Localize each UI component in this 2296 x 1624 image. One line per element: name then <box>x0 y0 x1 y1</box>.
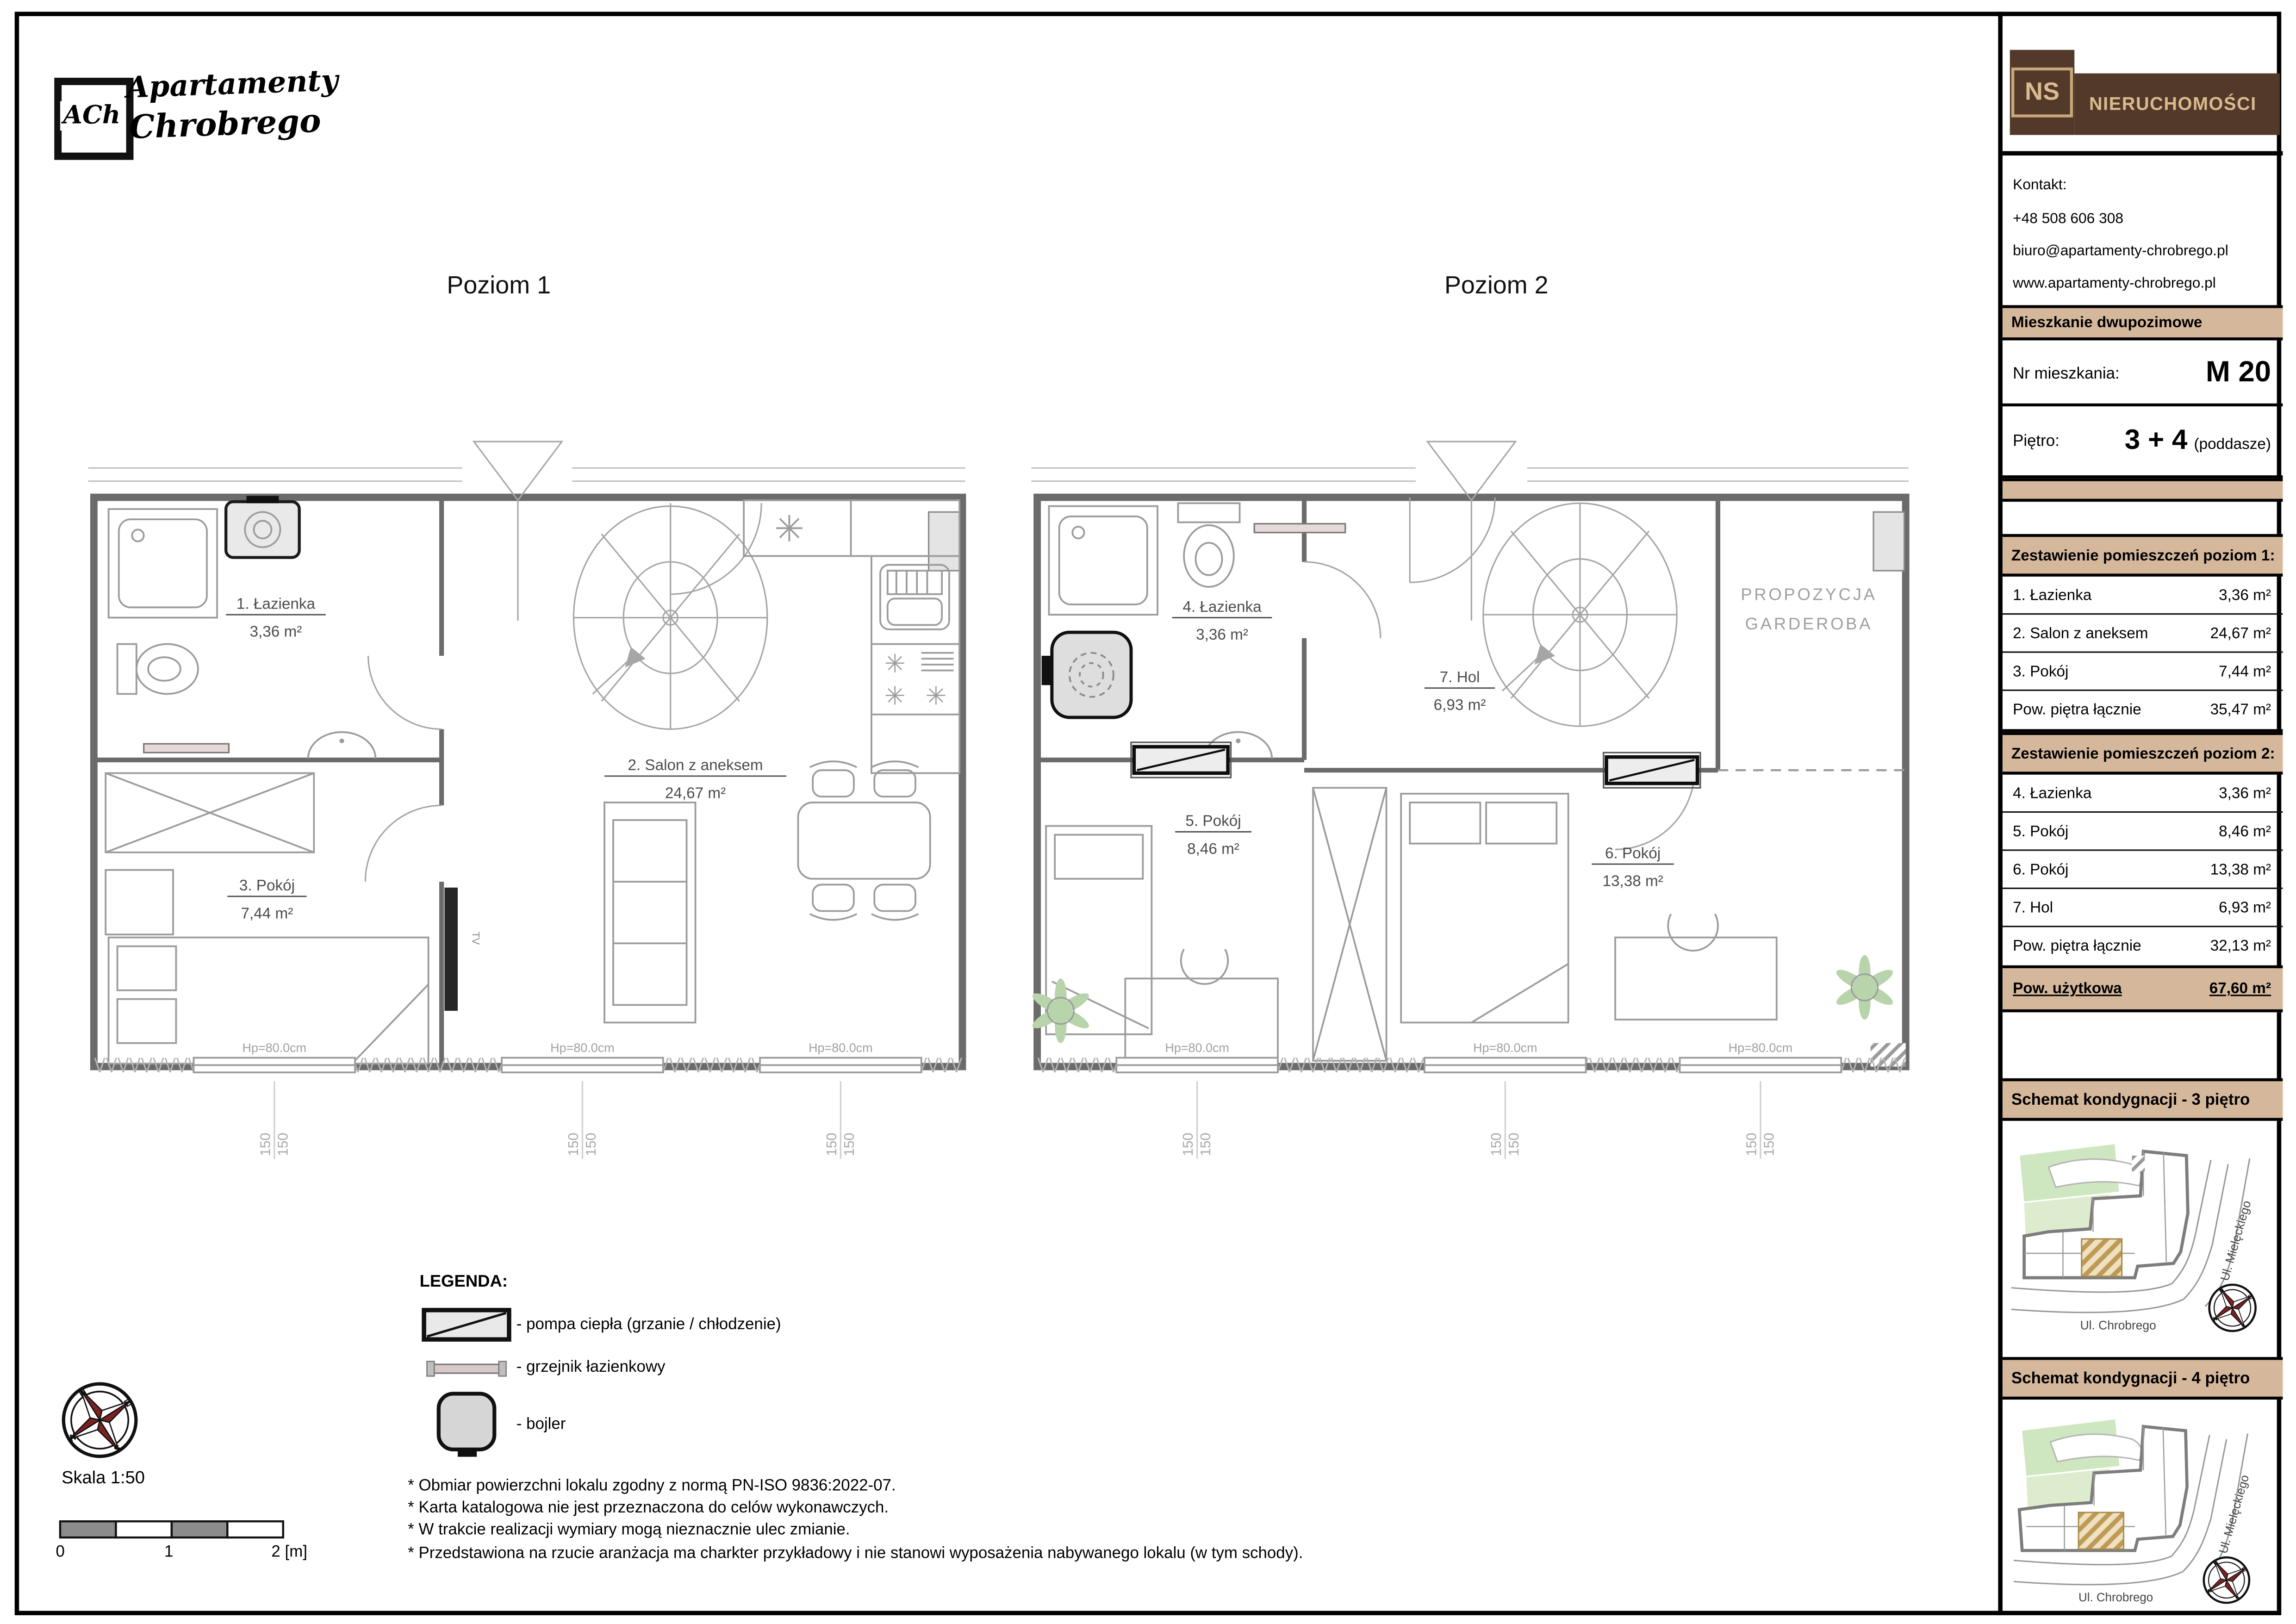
room5-furniture <box>1031 826 1278 1061</box>
floor-suffix: (poddasze) <box>2194 435 2271 453</box>
street-label-mieleckiego: Ul. Mielęckiego <box>2217 1199 2253 1282</box>
street-label-chrobrego: Ul. Chrobrego <box>2080 1319 2156 1332</box>
table-row: 3. Pokój7,44 m² <box>2003 653 2283 691</box>
boiler-icon <box>1052 632 1131 717</box>
bathroom1-fixtures <box>109 496 376 758</box>
footnote: * Karta katalogowa nie jest przeznaczona… <box>408 1498 1303 1520</box>
living-furniture <box>604 761 930 1022</box>
table-row: 1. Łazienka3,36 m² <box>2003 577 2283 615</box>
toilet-icon <box>118 644 137 694</box>
kitchen-sink-icon <box>880 565 949 629</box>
bathroom-heater-icon <box>1254 524 1345 533</box>
room2-name: 2. Salon z aneksem <box>628 757 763 774</box>
apartment-type-banner: Mieszkanie dwupozimowe <box>2003 305 2283 340</box>
spiral-stairs-icon <box>1483 503 1677 726</box>
window: Hp=80.0cm <box>1680 1041 1842 1072</box>
washing-machine-icon <box>226 502 299 557</box>
site-plan-floor3: Ul. Chrobrego Ul. Mielęckiego <box>2005 1124 2280 1354</box>
garderoba-note-line2: GARDEROBA <box>1745 614 1873 633</box>
sidebar: NS NIERUCHOMOŚCI Kontakt: +48 508 606 30… <box>1998 12 2283 1615</box>
floor-plan-level2: 4. Łazienka 3,36 m² <box>1031 430 1911 1164</box>
sink-icon <box>308 732 376 759</box>
legend-item-label: - bojler <box>516 1416 566 1433</box>
apartment-number-row: Nr mieszkania: M 20 <box>2003 343 2283 406</box>
highlighted-apartment <box>2082 1239 2122 1276</box>
stove-icon <box>871 644 959 715</box>
kitchen-annex <box>744 500 959 773</box>
legend-item: - pompa ciepła (grzanie / chłodzenie) <box>420 1306 781 1344</box>
legend-item: - bojler <box>420 1391 781 1458</box>
plan1-title: Poziom 1 <box>374 271 623 300</box>
footnote: * Przedstawiona na rzucie aranżacja ma c… <box>408 1543 1303 1565</box>
legend-item-label: - grzejnik łazienkowy <box>516 1358 666 1376</box>
logo-badge: ACh <box>60 101 124 131</box>
plan2-title: Poziom 2 <box>1372 271 1621 300</box>
scale-tick-1: 1 <box>164 1543 173 1561</box>
svg-text:Hp=80.0cm: Hp=80.0cm <box>809 1041 873 1055</box>
window: Hp=80.0cm <box>193 1041 355 1072</box>
svg-text:150: 150 <box>584 1133 599 1156</box>
window: Hp=80.0cm <box>760 1041 921 1072</box>
room6-area: 13,38 m² <box>1602 873 1663 890</box>
contact-heading: Kontakt: <box>2013 170 2228 203</box>
dining-table-icon <box>798 803 930 879</box>
logo-name-line1: Apartamenty <box>125 62 338 105</box>
scale-label: Skala 1:50 <box>62 1467 145 1487</box>
floor-plan-level1: 1. Łazienka 3,36 m² 3. Pokój 7,44 m² TV <box>88 430 968 1164</box>
room7-name: 7. Hol <box>1440 669 1480 686</box>
bathroom-heater-icon <box>144 744 229 753</box>
svg-text:150: 150 <box>1744 1133 1759 1156</box>
outer-walls <box>94 498 963 1067</box>
heat-pump-icon <box>1131 742 1231 778</box>
divider <box>2003 151 2283 156</box>
table-row: 2. Salon z aneksem24,67 m² <box>2003 615 2283 653</box>
legend-title: LEGENDA: <box>420 1273 781 1291</box>
svg-text:150: 150 <box>275 1133 291 1156</box>
room3-area: 7,44 m² <box>241 905 293 922</box>
schematic1-header: Schemat kondygnacji - 3 piętro <box>2003 1078 2283 1121</box>
room2-area: 24,67 m² <box>665 784 726 802</box>
sofa-icon <box>604 803 696 1022</box>
decor-strip <box>2003 478 2283 502</box>
room-tables: Zestawienie pomieszczeń poziom 1: 1. Łaz… <box>2003 534 2283 1012</box>
toilet-icon <box>1178 503 1239 522</box>
site-plan-floor4: Ul. Chrobrego Ul. Mielęckiego <box>2005 1402 2280 1618</box>
bed-icon <box>1401 794 1568 1023</box>
room4-name: 4. Łazienka <box>1182 598 1262 616</box>
usable-area-row: Pow. użytkowa 67,60 m² <box>2003 968 2283 1012</box>
bathroom-door-arc <box>1304 562 1381 638</box>
usable-area-value: 67,60 m² <box>2209 980 2271 997</box>
svg-text:150: 150 <box>1181 1133 1196 1156</box>
legend-item: - grzejnik łazienkowy <box>420 1356 781 1379</box>
footnote: * Obmiar powierzchni lokalu zgodny z nor… <box>408 1476 1303 1498</box>
street-label-chrobrego: Ul. Chrobrego <box>2078 1591 2153 1604</box>
room3-door-arc <box>365 805 442 882</box>
scale-tick-0: 0 <box>56 1543 64 1561</box>
scale-bar: 0 1 2 [m] <box>59 1520 352 1573</box>
compass <box>56 1376 143 1471</box>
room5-name: 5. Pokój <box>1185 813 1241 830</box>
agency-logo-badge: NS <box>2010 50 2074 135</box>
scale-tick-2: 2 [m] <box>271 1543 359 1561</box>
apartment-number-value: M 20 <box>2206 356 2271 390</box>
floor-row: Piętro: 3 + 4 (poddasze) <box>2003 406 2283 478</box>
agency-logo-initials: NS <box>2012 68 2073 118</box>
svg-text:150: 150 <box>1198 1133 1213 1156</box>
svg-text:Hp=80.0cm: Hp=80.0cm <box>243 1041 307 1055</box>
heat-pump-icon <box>1604 753 1700 788</box>
vent-symbol <box>1427 442 1515 500</box>
contact-block: Kontakt: +48 508 606 308 biuro@apartamen… <box>2013 170 2228 301</box>
footnote: * W trakcie realizacji wymiary mogą niez… <box>408 1520 1303 1543</box>
room5-area: 8,46 m² <box>1187 840 1239 858</box>
room3-name: 3. Pokój <box>239 877 295 894</box>
garderoba-note-line1: PROPOZYCJA <box>1741 585 1877 604</box>
room1-name: 1. Łazienka <box>236 596 316 613</box>
level2-table-header: Zestawienie pomieszczeń poziom 2: <box>2003 732 2283 775</box>
svg-text:150: 150 <box>566 1133 581 1156</box>
floor-label: Piętro: <box>2013 432 2060 450</box>
hob-burner-icon <box>776 515 803 541</box>
bathroom2-fixtures <box>1042 503 1345 759</box>
room1-area: 3,36 m² <box>250 623 302 641</box>
bathroom-heater-icon <box>420 1356 516 1379</box>
chair-icon <box>1668 914 1718 951</box>
usable-area-label: Pow. użytkowa <box>2013 980 2122 997</box>
window: Hp=80.0cm <box>1116 1041 1278 1072</box>
svg-text:150: 150 <box>842 1133 857 1156</box>
level1-table-header: Zestawienie pomieszczeń poziom 1: <box>2003 534 2283 577</box>
apartment-number-label: Nr mieszkania: <box>2013 365 2120 382</box>
legend: LEGENDA: - pompa ciepła (grzanie / chłod… <box>420 1273 781 1470</box>
bathroom-door-arc <box>368 656 442 729</box>
svg-text:Hp=80.0cm: Hp=80.0cm <box>1729 1041 1793 1055</box>
svg-text:150: 150 <box>258 1133 273 1156</box>
table-row: 5. Pokój8,46 m² <box>2003 813 2283 851</box>
footnotes: * Obmiar powierzchni lokalu zgodny z nor… <box>408 1476 1303 1565</box>
room4-area: 3,36 m² <box>1196 626 1248 643</box>
level2-total-row: Pow. piętra łącznie32,13 m² <box>2003 927 2283 968</box>
svg-text:150: 150 <box>1489 1133 1504 1156</box>
window: Hp=80.0cm <box>502 1041 663 1072</box>
table-row: 7. Hol6,93 m² <box>2003 889 2283 927</box>
tv-cabinet-icon <box>444 888 458 1011</box>
tv-label: TV <box>470 932 482 945</box>
room6-furniture <box>1313 788 1896 1061</box>
logo-name-line2: Chrobrego <box>129 102 322 147</box>
vent-symbol <box>474 442 562 500</box>
contact-website[interactable]: www.apartamenty-chrobrego.pl <box>2013 268 2228 301</box>
level1-total-row: Pow. piętra łącznie35,47 m² <box>2003 691 2283 732</box>
table-row: 6. Pokój13,38 m² <box>2003 851 2283 889</box>
dimension-labels: 150 150 150 150 150 150 <box>258 1081 857 1159</box>
window: Hp=80.0cm <box>1425 1041 1586 1072</box>
street-label-mieleckiego: Ul. Mielęckiego <box>2217 1474 2252 1555</box>
svg-text:Hp=80.0cm: Hp=80.0cm <box>1473 1041 1537 1055</box>
heat-pump-icon <box>420 1306 516 1344</box>
spiral-stairs-icon <box>573 506 767 729</box>
highlighted-apartment <box>2078 1512 2123 1549</box>
svg-text:150: 150 <box>824 1133 840 1156</box>
dimension-labels: 150 150 150 150 150 150 <box>1181 1081 1777 1159</box>
svg-text:150: 150 <box>1761 1133 1777 1156</box>
boiler-icon <box>420 1391 516 1458</box>
legend-item-label: - pompa ciepła (grzanie / chłodzenie) <box>516 1316 781 1333</box>
room7-area: 6,93 m² <box>1434 697 1486 714</box>
svg-text:Hp=80.0cm: Hp=80.0cm <box>550 1041 615 1055</box>
schematic2-header: Schemat kondygnacji - 4 piętro <box>2003 1357 2283 1400</box>
svg-text:150: 150 <box>1506 1133 1522 1156</box>
contact-email[interactable]: biuro@apartamenty-chrobrego.pl <box>2013 236 2228 268</box>
floor-value: 3 + 4 <box>2125 425 2188 456</box>
table-row: 4. Łazienka3,36 m² <box>2003 775 2283 813</box>
room6-name: 6. Pokój <box>1605 845 1661 862</box>
contact-phone[interactable]: +48 508 606 308 <box>2013 204 2228 236</box>
agency-logo-name: NIERUCHOMOŚCI <box>2074 73 2280 135</box>
svg-text:Hp=80.0cm: Hp=80.0cm <box>1165 1041 1229 1055</box>
plant-icon <box>1834 955 1895 1020</box>
catalog-sheet: N E S W ACh Apartamenty Chrobrego Poziom… <box>0 0 2296 1624</box>
